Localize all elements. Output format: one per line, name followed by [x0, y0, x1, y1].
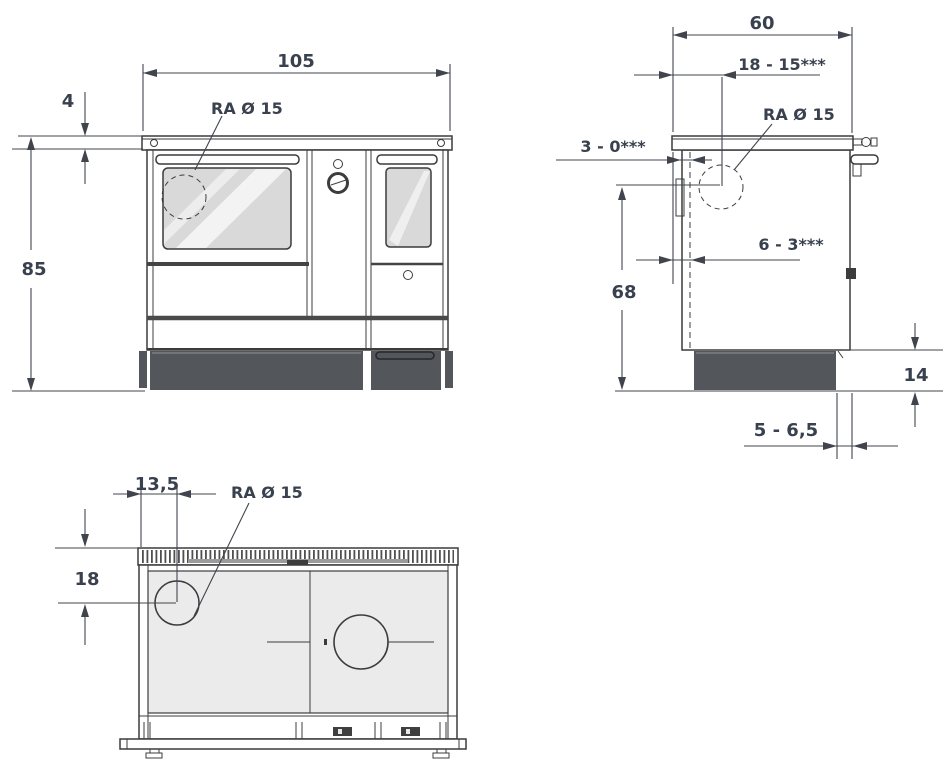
rail-stem	[853, 139, 862, 145]
arrowhead-icon	[143, 69, 157, 77]
adjustable-foot	[433, 753, 449, 758]
dim-label-depth: 60	[749, 13, 774, 34]
foot-clamp	[401, 727, 420, 736]
dim-front-height: 85	[12, 137, 145, 391]
dim-label-flue-left: 13,5	[135, 474, 179, 495]
arrowhead-icon	[618, 377, 626, 390]
towel-rail	[120, 739, 466, 749]
center-mark	[324, 639, 327, 645]
top-back-rail	[138, 548, 458, 565]
side-body	[615, 136, 943, 391]
plinth-side-foot	[139, 351, 147, 388]
dim-side-plinth-recess: 5 - 6,5	[744, 393, 898, 459]
adjustable-foot	[146, 753, 162, 758]
arrowhead-icon	[27, 137, 35, 150]
arrowhead-icon	[618, 187, 626, 200]
arrowhead-icon	[667, 156, 681, 164]
dim-side-plinth-height: 14	[842, 323, 943, 427]
arrowhead-icon	[81, 123, 89, 136]
oven-door-handle	[156, 155, 299, 164]
arrowhead-icon	[853, 442, 867, 450]
top-view: 13,5 18 RA Ø 15	[55, 474, 466, 758]
side-plinth	[694, 351, 836, 390]
foot-clamp	[333, 727, 352, 736]
arrowhead-icon	[81, 534, 89, 547]
door-lever-stem	[853, 164, 861, 176]
plinth-left	[150, 351, 363, 390]
dim-label-height: 85	[21, 259, 46, 280]
flue-label: RA Ø 15	[211, 99, 283, 118]
side-view: 60 18 - 15*** RA Ø 15 3 - 0***	[556, 13, 943, 459]
arrowhead-icon	[659, 256, 673, 264]
front-body	[147, 150, 448, 350]
side-worktop-slab	[672, 136, 853, 150]
dim-front-width: 105	[143, 51, 450, 131]
flue-label: RA Ø 15	[231, 483, 303, 502]
dim-label-flue-height: 68	[611, 282, 636, 303]
door-lever-handle	[851, 155, 878, 164]
plinth-side-foot	[445, 351, 453, 388]
arrowhead-icon	[823, 442, 837, 450]
technical-drawing-page: 105 4 85 RA Ø 15	[0, 0, 946, 770]
dim-label-plinth-height: 14	[903, 365, 928, 386]
plinth-corner-tick	[838, 351, 843, 358]
top-body	[139, 565, 457, 739]
dim-label-back-gap: 3 - 0***	[580, 137, 646, 156]
front-worktop	[142, 136, 452, 150]
foot-clamp-slot	[338, 729, 342, 734]
rail-knob-icon	[862, 138, 871, 147]
front-worktop-slab	[142, 136, 452, 150]
dim-label-plinth-recess: 5 - 6,5	[754, 420, 818, 441]
arrowhead-icon	[673, 31, 687, 39]
dim-label-flue-offset: 18 - 15***	[738, 55, 826, 74]
front-view: 105 4 85 RA Ø 15	[12, 51, 453, 391]
dim-label-width: 105	[277, 51, 315, 72]
dim-front-worktop-thickness: 4	[12, 91, 143, 184]
firebox-door-handle	[377, 155, 437, 164]
hotplate-circle	[334, 615, 388, 669]
dim-label-worktop-thickness: 4	[62, 91, 75, 112]
arrowhead-icon	[911, 392, 919, 405]
arrowhead-icon	[911, 337, 919, 350]
arrowhead-icon	[722, 71, 736, 79]
dim-label-flue-back: 18	[74, 569, 99, 590]
plinth-right	[371, 351, 441, 390]
foot-clamp-slot	[406, 729, 410, 734]
dim-label-flue-back-offset: 6 - 3***	[758, 235, 824, 254]
arrowhead-icon	[81, 604, 89, 617]
arrowhead-icon	[436, 69, 450, 77]
flue-label: RA Ø 15	[763, 105, 835, 124]
arrowhead-icon	[838, 31, 852, 39]
arrowhead-icon	[81, 149, 89, 162]
front-plinth	[139, 351, 453, 390]
rail-end-cap	[871, 138, 877, 146]
stove-dimension-drawing: 105 4 85 RA Ø 15	[0, 0, 946, 770]
arrowhead-icon	[27, 378, 35, 391]
door-latch	[846, 268, 856, 279]
arrowhead-icon	[659, 71, 673, 79]
